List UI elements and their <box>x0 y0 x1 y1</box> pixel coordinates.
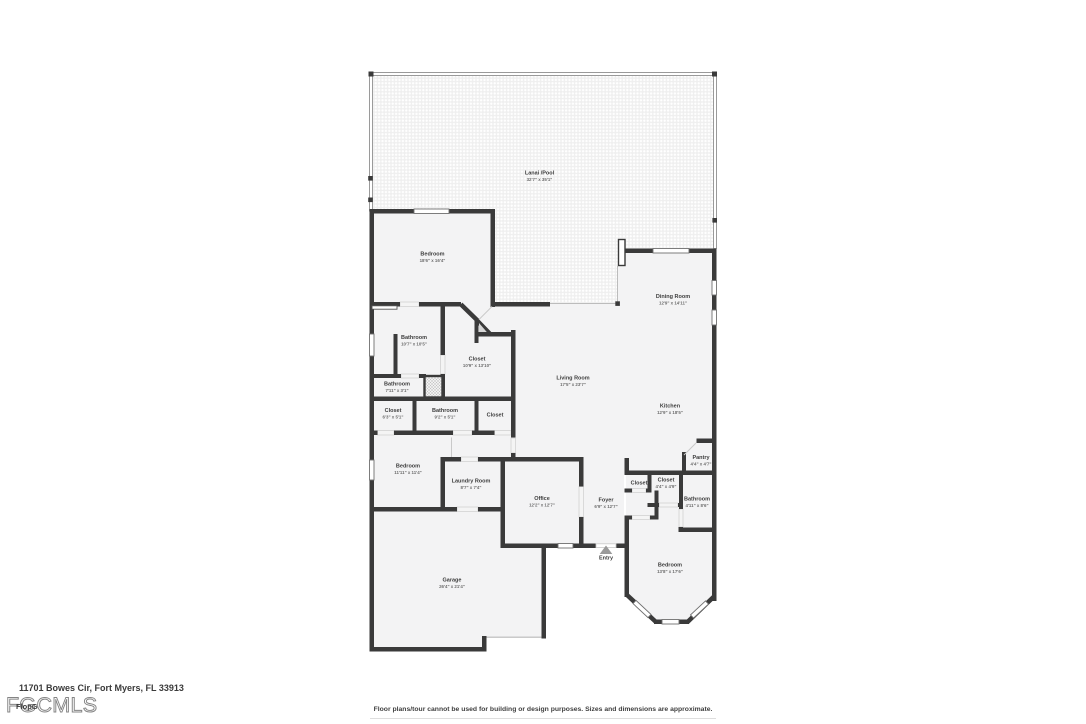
svg-text:Bedroom: Bedroom <box>396 464 420 470</box>
svg-text:10'7" x 10'5": 10'7" x 10'5" <box>401 342 427 347</box>
svg-text:10'9" x 13'10": 10'9" x 13'10" <box>463 363 491 368</box>
svg-text:4'4" x 4'7": 4'4" x 4'7" <box>691 462 712 467</box>
svg-text:Bathroom: Bathroom <box>684 497 710 503</box>
svg-text:6'3" x 5'1": 6'3" x 5'1" <box>383 415 404 420</box>
svg-text:26'4" x 21'4": 26'4" x 21'4" <box>439 584 465 589</box>
svg-text:12'9" x 18'5": 12'9" x 18'5" <box>657 410 683 415</box>
svg-text:Closet: Closet <box>487 413 504 419</box>
svg-text:Closet: Closet <box>385 408 402 414</box>
svg-text:6'9" x 12'7": 6'9" x 12'7" <box>594 504 617 509</box>
svg-text:13'8" x 17'6": 13'8" x 17'6" <box>657 569 683 574</box>
svg-text:11'11" x 11'4": 11'11" x 11'4" <box>394 470 422 475</box>
svg-text:Kitchen: Kitchen <box>660 404 681 410</box>
svg-text:Pantry: Pantry <box>692 455 710 461</box>
svg-text:12'9" x 14'11": 12'9" x 14'11" <box>659 301 687 306</box>
svg-text:Bedroom: Bedroom <box>420 252 444 258</box>
svg-text:Laundry Room: Laundry Room <box>452 479 491 485</box>
svg-text:4'4" x 4'9": 4'4" x 4'9" <box>656 484 677 489</box>
svg-text:Closet: Closet <box>631 481 648 487</box>
svg-text:17'5" x 23'7": 17'5" x 23'7" <box>560 382 586 387</box>
svg-text:Bathroom: Bathroom <box>401 335 427 341</box>
svg-text:Bedroom: Bedroom <box>658 563 682 569</box>
svg-text:Dining Room: Dining Room <box>656 294 690 300</box>
svg-text:Entry: Entry <box>599 556 614 562</box>
svg-text:7'11" x 3'1": 7'11" x 3'1" <box>385 388 408 393</box>
svg-text:Floor plans/tour cannot be use: Floor plans/tour cannot be used for buil… <box>374 706 713 713</box>
svg-text:Foyer: Foyer <box>599 498 615 504</box>
svg-text:9'2" x 5'1": 9'2" x 5'1" <box>435 415 456 420</box>
svg-text:Garage: Garage <box>443 578 462 584</box>
svg-text:18'6" x 16'4": 18'6" x 16'4" <box>420 258 446 263</box>
svg-text:Living Room: Living Room <box>556 376 589 382</box>
svg-text:12'2" x 12'7": 12'2" x 12'7" <box>529 503 555 508</box>
svg-text:11701 Bowes Cir, Fort Myers, F: 11701 Bowes Cir, Fort Myers, FL 33913 <box>19 683 184 693</box>
svg-text:Closet: Closet <box>469 357 486 363</box>
svg-text:FlopG: FlopG <box>16 702 38 711</box>
svg-text:Office: Office <box>534 496 550 502</box>
svg-text:32'7" x 35'1": 32'7" x 35'1" <box>527 177 553 182</box>
svg-text:8'7" x 7'4": 8'7" x 7'4" <box>461 485 482 490</box>
svg-text:Lanai /Pool: Lanai /Pool <box>525 171 555 177</box>
svg-text:Closet: Closet <box>658 478 675 484</box>
svg-text:Bathroom: Bathroom <box>384 382 410 388</box>
svg-text:Bathroom: Bathroom <box>432 408 458 414</box>
svg-text:4'11" x 8'6": 4'11" x 8'6" <box>685 503 708 508</box>
